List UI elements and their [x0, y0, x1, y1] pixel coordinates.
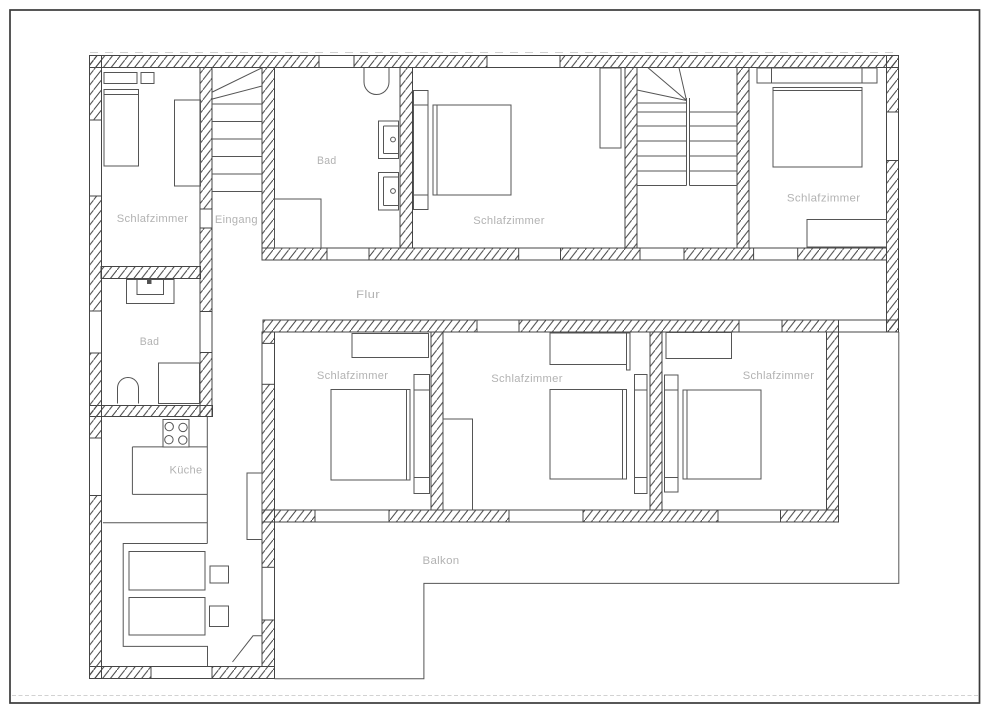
svg-text:Schlafzimmer: Schlafzimmer	[491, 373, 563, 385]
svg-text:Schlafzimmer: Schlafzimmer	[117, 213, 189, 225]
svg-text:Eingang: Eingang	[215, 214, 258, 226]
svg-text:Flur: Flur	[356, 289, 380, 301]
svg-text:Bad: Bad	[140, 336, 160, 348]
svg-text:Balkon: Balkon	[423, 555, 460, 567]
svg-text:Schlafzimmer: Schlafzimmer	[473, 215, 545, 227]
svg-text:Schlafzimmer: Schlafzimmer	[743, 370, 815, 382]
svg-text:Bad: Bad	[317, 155, 337, 167]
svg-text:Schlafzimmer: Schlafzimmer	[317, 370, 389, 382]
svg-text:Küche: Küche	[170, 465, 203, 477]
svg-text:Schlafzimmer: Schlafzimmer	[787, 193, 861, 205]
